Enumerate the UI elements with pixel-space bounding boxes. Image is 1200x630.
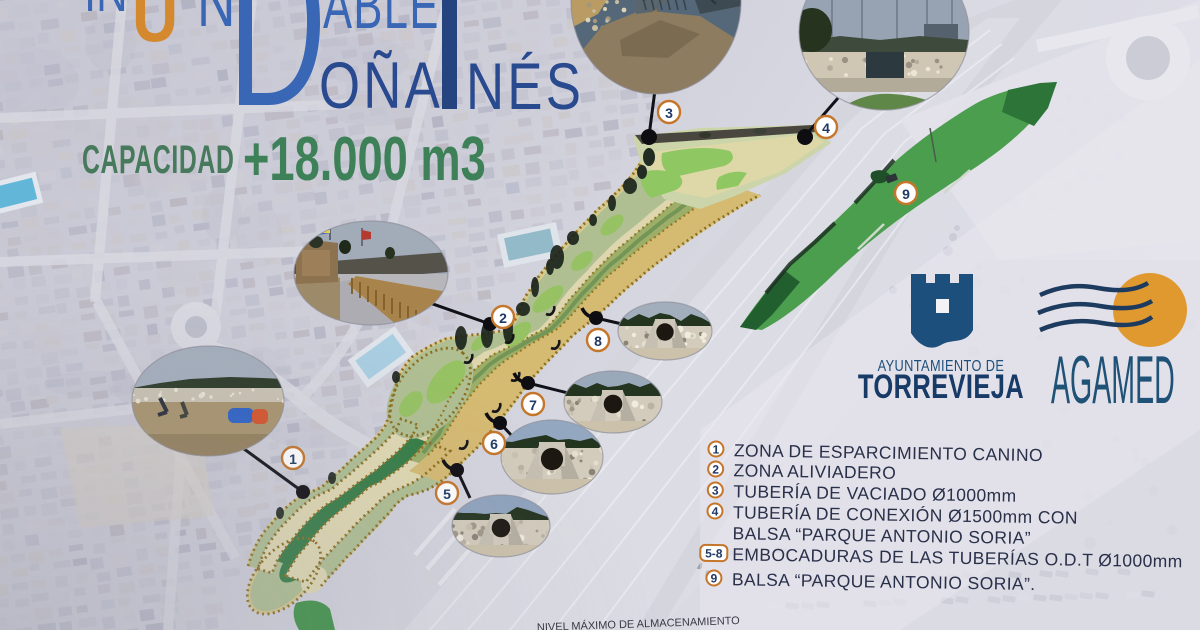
svg-text:OÑA: OÑA: [319, 48, 443, 122]
svg-text:9: 9: [902, 186, 910, 202]
svg-text:4: 4: [822, 120, 830, 136]
svg-text:U: U: [132, 0, 178, 58]
svg-text:7: 7: [529, 397, 537, 413]
svg-text:6: 6: [490, 436, 498, 452]
svg-text:3: 3: [665, 105, 673, 121]
svg-text:N: N: [197, 0, 235, 42]
svg-text:ABLE: ABLE: [323, 0, 440, 42]
svg-text:ZONA ALIVIADERO: ZONA ALIVIADERO: [733, 460, 896, 483]
svg-text:+18.000 m3: +18.000 m3: [243, 124, 486, 194]
svg-text:IN: IN: [84, 0, 128, 23]
svg-text:1: 1: [289, 451, 297, 467]
svg-text:CAPACIDAD: CAPACIDAD: [82, 138, 234, 182]
svg-text:2: 2: [499, 310, 507, 326]
svg-text:TORREVIEJA: TORREVIEJA: [858, 369, 1024, 406]
svg-text:5: 5: [443, 486, 451, 502]
svg-text:8: 8: [594, 333, 602, 349]
svg-text:1: 1: [712, 442, 719, 456]
svg-text:4: 4: [712, 504, 719, 518]
svg-text:5-8: 5-8: [705, 546, 723, 560]
svg-text:9: 9: [710, 571, 717, 585]
svg-text:3: 3: [712, 483, 719, 497]
svg-text:NÉS: NÉS: [466, 49, 584, 123]
svg-text:AGAMED: AGAMED: [1051, 343, 1175, 419]
svg-text:2: 2: [712, 462, 719, 476]
